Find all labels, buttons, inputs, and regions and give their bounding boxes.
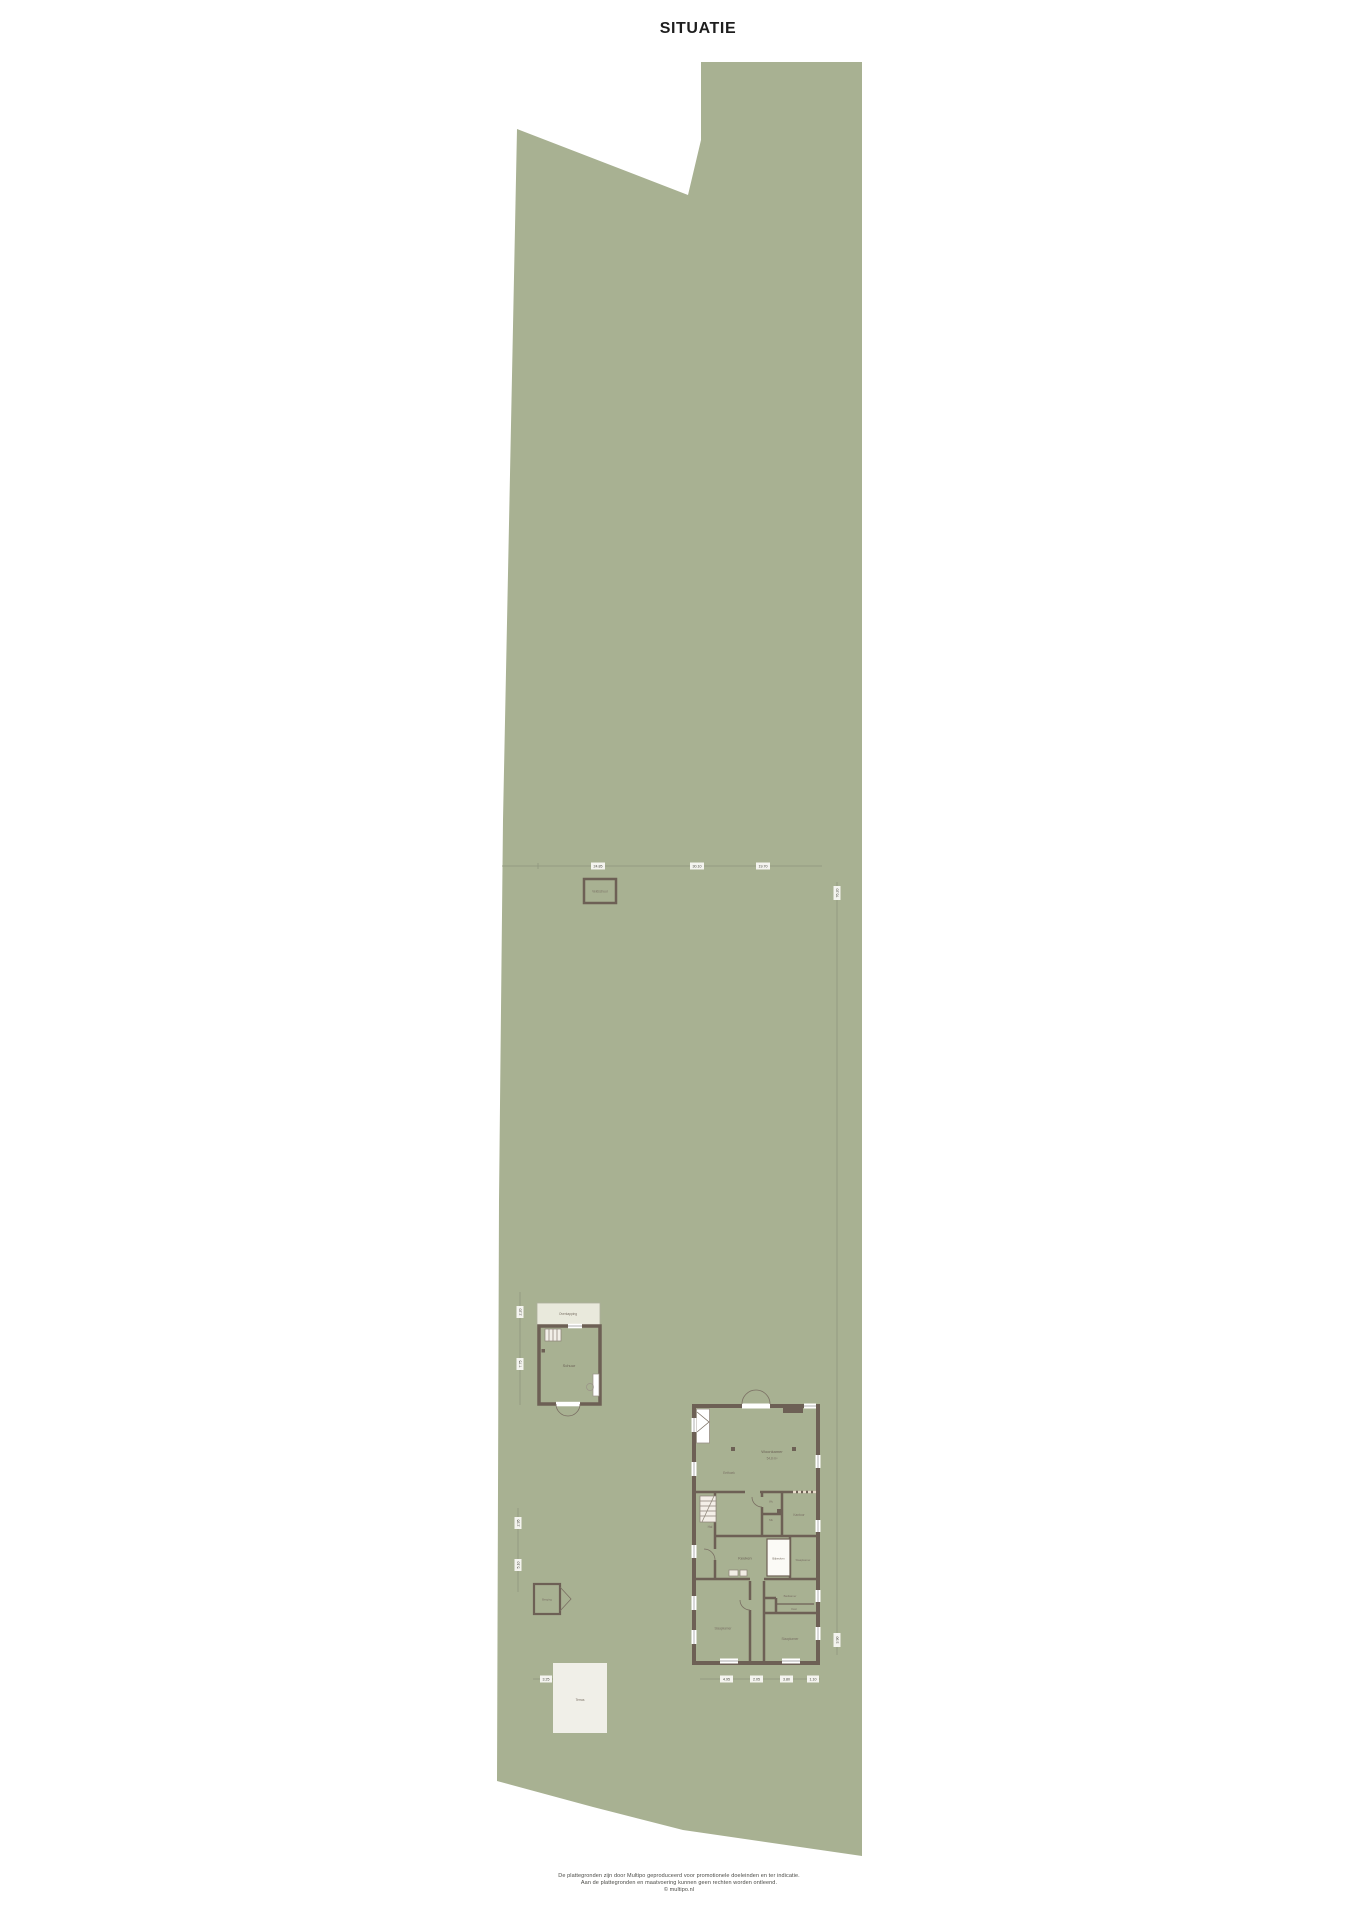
- parcel-outline: [497, 62, 862, 1856]
- footer-line-3: © multipo.nl: [0, 1887, 1358, 1894]
- outbuilding-label: Schuur: [563, 1363, 576, 1368]
- situatie-page: SITUATIE 24.85 30.10 19.70 76.20 3.90: [0, 0, 1358, 1920]
- outbuilding-stairs: [545, 1329, 561, 1341]
- room-label-hal: Hal: [708, 1525, 713, 1529]
- dim-label: 24.85: [594, 865, 603, 869]
- dim-label: 76.20: [835, 889, 839, 898]
- room-label-woonkamer: Woonkamer: [761, 1449, 783, 1454]
- room-label-kast: Kast: [791, 1607, 797, 1611]
- room-label-eethoek: Eethoek: [723, 1471, 735, 1475]
- dim-label: 3.80: [783, 1678, 790, 1682]
- room-label-kantoor: Kantoor: [793, 1513, 805, 1517]
- column: [731, 1447, 735, 1451]
- hearth-block: [783, 1407, 803, 1414]
- room-label-bijkeuken: Bijkeuken: [772, 1557, 785, 1561]
- terrace: Terras: [553, 1663, 607, 1733]
- veranda-label: Overkapping: [559, 1312, 577, 1316]
- room-label-slaapkamer-1: Slaapkamer: [796, 1558, 811, 1562]
- site-plan: 24.85 30.10 19.70 76.20 3.90 2.20: [0, 0, 1358, 1920]
- room-area-woonkamer: 54,8 m²: [767, 1457, 778, 1461]
- column: [792, 1447, 796, 1451]
- dim-label: 2.20: [518, 1309, 522, 1316]
- dim-label: 3.90: [835, 1637, 839, 1644]
- dim-label: 5.10: [516, 1562, 520, 1569]
- room-label-badkamer: Badkamer: [784, 1594, 797, 1598]
- shed-label: Berging: [542, 1598, 552, 1602]
- room-label-mk: Mk: [769, 1518, 773, 1522]
- dim-label: 3.25: [543, 1678, 550, 1682]
- dim-label: 30.10: [693, 865, 702, 869]
- field-barn-label: Veldschuur: [592, 890, 609, 894]
- toilet-fixture: [777, 1509, 782, 1515]
- dim-label: 7.75: [518, 1361, 522, 1368]
- room-label-slaapkamer-2: Slaapkamer: [714, 1627, 732, 1631]
- terrace-label: Terras: [576, 1698, 585, 1702]
- entry-closet: [697, 1409, 710, 1443]
- room-label-keuken: Keuken: [738, 1556, 752, 1561]
- footer-disclaimer: De plattegronden zijn door Multipo gepro…: [0, 1873, 1358, 1894]
- room-label-slaapkamer-3: Slaapkamer: [781, 1637, 799, 1641]
- staircase: [700, 1496, 716, 1522]
- footer-line-1: De plattegronden zijn door Multipo gepro…: [0, 1873, 1358, 1880]
- bath-fixtures: [729, 1570, 747, 1576]
- dim-label: 1.10: [810, 1678, 817, 1682]
- room-label-wc: Wc: [769, 1500, 774, 1504]
- dim-label: 19.70: [759, 865, 768, 869]
- dim-label: 4.95: [723, 1678, 730, 1682]
- dim-label: 2.95: [516, 1520, 520, 1527]
- footer-line-2: Aan de plattegronden en maatvoering kunn…: [0, 1880, 1358, 1887]
- dim-label: 2.05: [753, 1678, 760, 1682]
